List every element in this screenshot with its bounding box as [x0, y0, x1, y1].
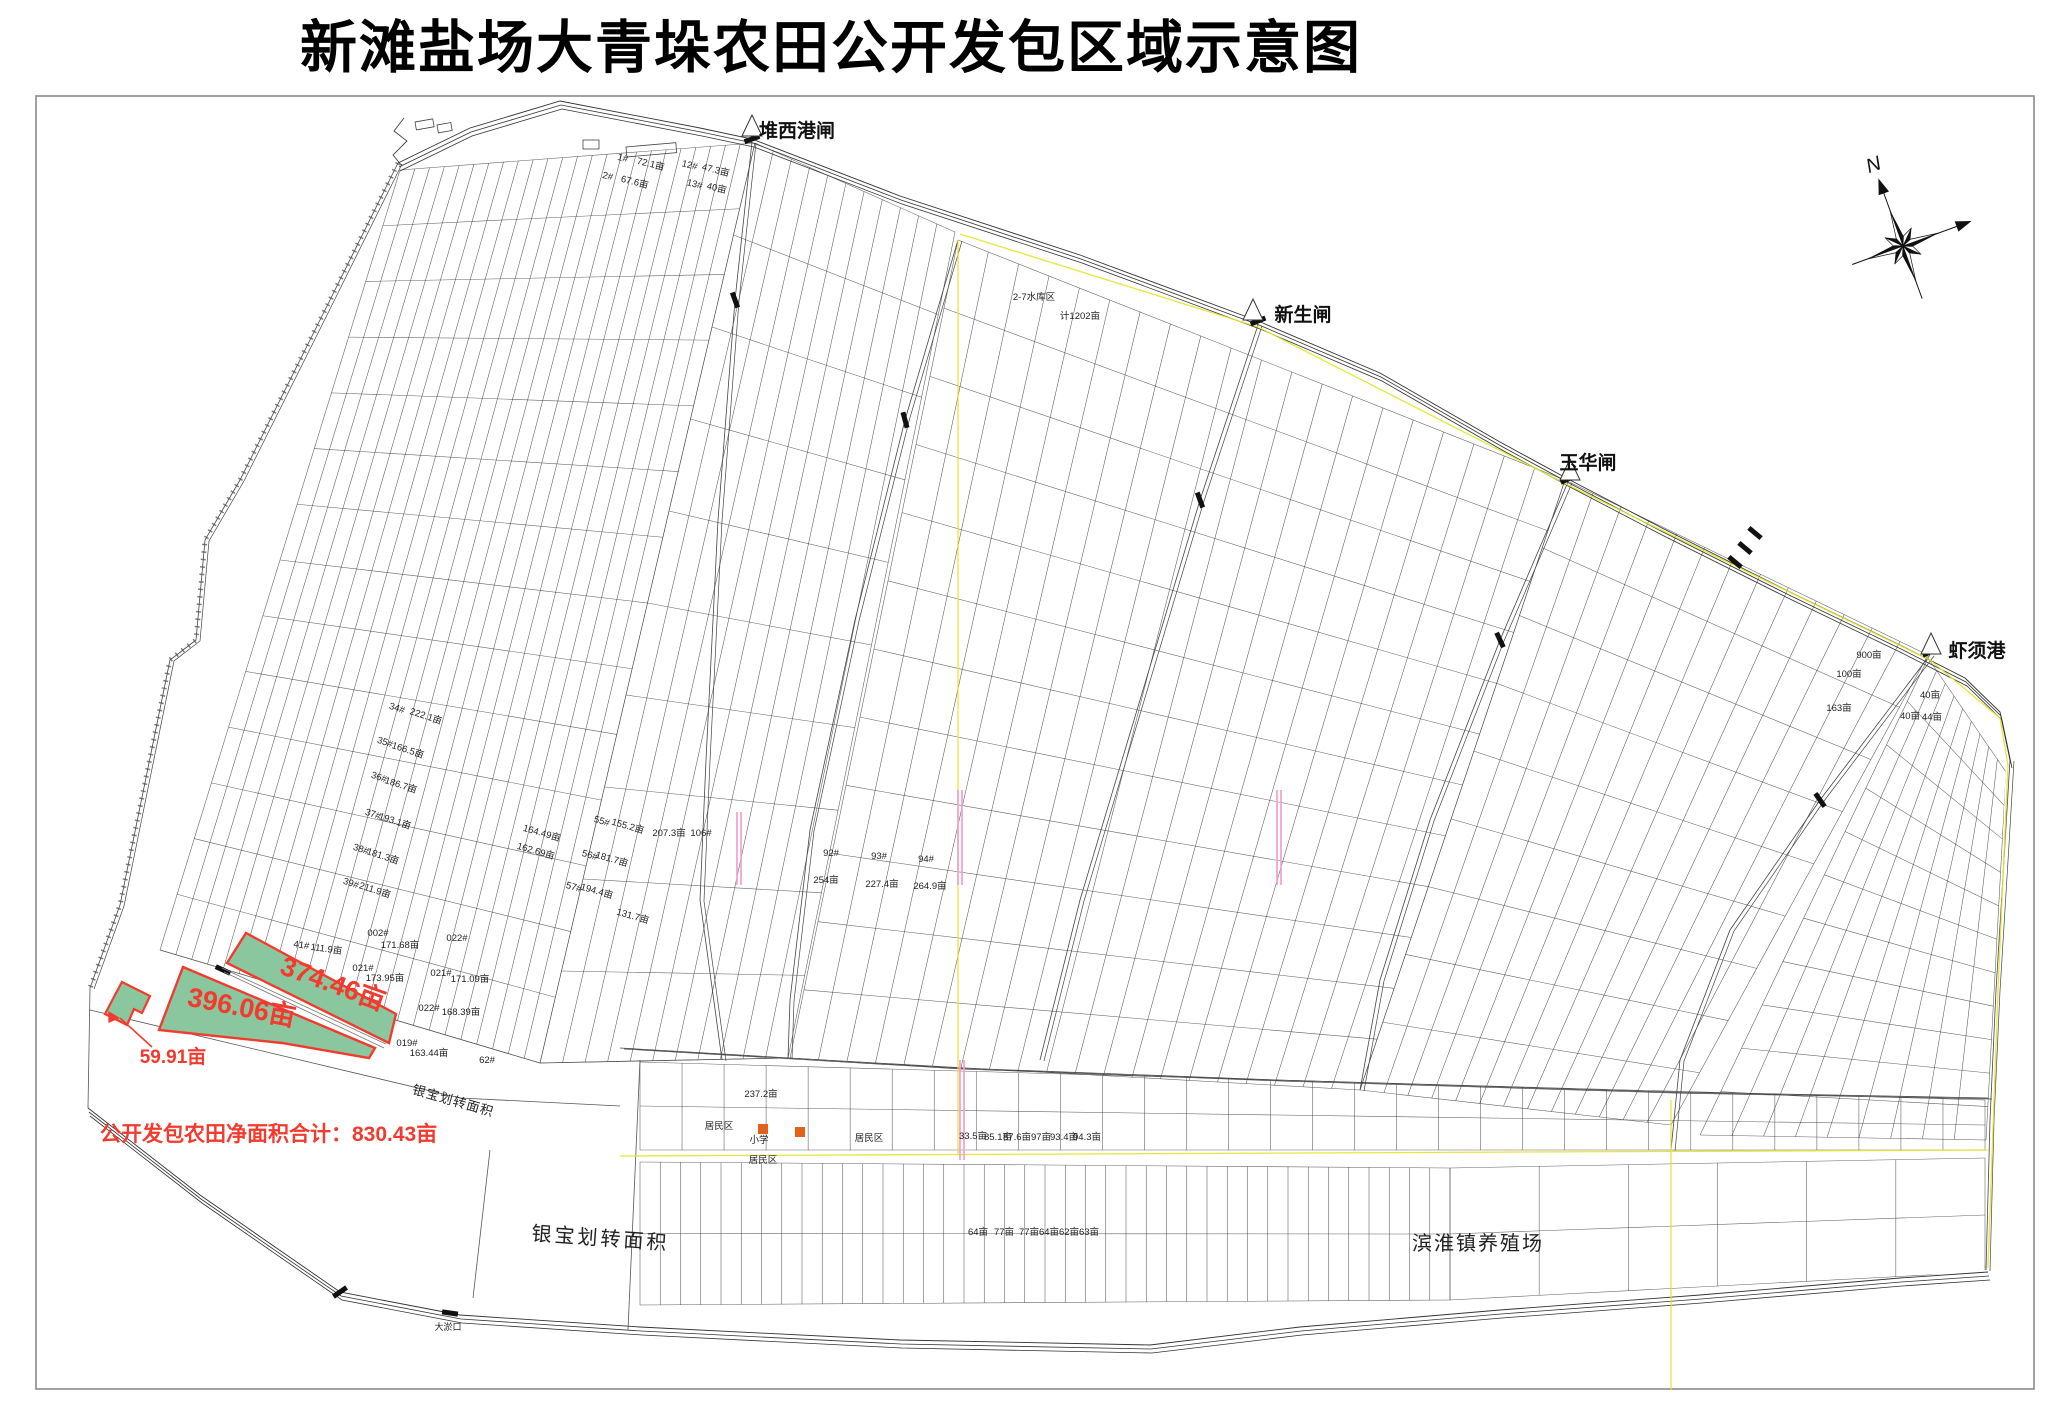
inner-road [1040, 325, 1258, 1060]
parcel-strip-line [1551, 588, 1788, 1112]
facility-square-icon [758, 1124, 768, 1134]
parcel-label: 92# [823, 848, 840, 859]
inner-road [90, 163, 398, 988]
parcel-label: 227.4亩 [865, 878, 898, 890]
parcel-label: 居民区 [855, 1133, 884, 1144]
parcel-label: 181.7亩 [594, 849, 629, 870]
parcel-cross-line [648, 603, 872, 645]
landmark-label: 虾须港 [1948, 640, 2006, 662]
compass-north-arrow [1873, 176, 1889, 195]
parcel-label: 171.68亩 [381, 939, 420, 951]
canal-road [398, 101, 2010, 760]
parcel-strip-line [1827, 709, 1963, 1138]
inner-road [620, 1048, 1988, 1098]
parcel-label: 022# [446, 933, 468, 944]
parcel-cross-line [280, 560, 648, 603]
parcel-label: 94# [918, 854, 935, 865]
parcel-cross-line [1866, 788, 2001, 872]
inner-road [1671, 655, 1930, 1150]
parcel-label: 33.5亩 [959, 1130, 987, 1142]
boundary-line [473, 1150, 490, 1298]
parcel-label: 40亩 [1900, 710, 1920, 722]
annotation-arrow [120, 1018, 152, 1047]
parcel-label: 193.1亩 [377, 810, 412, 832]
parcel-label: 计1202亩 [1060, 310, 1100, 322]
parcel-label: 173.95亩 [366, 972, 405, 984]
parcel-cross-line [562, 971, 805, 975]
parcel-label: 171.09亩 [451, 973, 490, 985]
map-canvas: 公开发包农田净面积合计：830.43亩 堆西港闸新生闸玉华闸虾须港374.46亩… [0, 0, 2069, 1417]
parcel-cross-line [1428, 887, 1756, 969]
parcel-label: 94.3亩 [1073, 1131, 1101, 1143]
highlight-area-label: 59.91亩 [140, 1045, 207, 1068]
parcel-label: 34# [388, 701, 407, 717]
parcel-label: 居民区 [705, 1121, 734, 1132]
landmark-label: 新生闸 [1274, 303, 1331, 326]
parcel-label: 186.7亩 [383, 774, 418, 796]
parcel-label: 12# [681, 158, 700, 173]
sluice-gate-icon [901, 412, 910, 429]
parcel-strip-line [1599, 615, 1844, 1117]
parcel-cross-line [1519, 616, 1870, 760]
canal-road [400, 109, 2012, 768]
parcel-cross-line [916, 445, 1514, 633]
parcel-label: 13# [686, 177, 705, 192]
gate-triangle-icon [1243, 299, 1263, 320]
parcel-label: 264.9亩 [913, 880, 946, 892]
parcel-label: 40亩 [706, 180, 728, 197]
compass-east-arrow [1955, 216, 1974, 232]
total-area-label: 公开发包农田净面积合计：830.43亩 [100, 1122, 437, 1146]
parcel-label: 211.9亩 [358, 879, 393, 900]
parcel-label: 022# [418, 1003, 440, 1014]
parcel-strip-line [1647, 642, 1900, 1123]
parcel-label: 900亩 [1856, 649, 1881, 661]
map-frame [36, 96, 2034, 1389]
parcel-cross-line [1783, 962, 1993, 1007]
landmark-label: 玉华闸 [1559, 451, 1616, 474]
building-outline [583, 140, 599, 149]
parcel-cross-line [1824, 875, 1997, 939]
facility-square-icon [795, 1127, 805, 1137]
boundary-notch [393, 118, 407, 166]
parcel-cross-line [583, 879, 821, 893]
sluice-gate-icon [1747, 526, 1762, 540]
parcel-strip-line [1623, 628, 1872, 1120]
parcel-label: 63亩 [1079, 1226, 1099, 1238]
parcel-cross-line [958, 240, 1565, 480]
inner-road [704, 143, 756, 1061]
parcel-strip-line [1859, 721, 1971, 1137]
parcel-label: 97亩 [1031, 1131, 1051, 1143]
parcel-label: 002# [367, 928, 389, 939]
compass-group: N [1819, 130, 1991, 317]
parcel-cross-line [902, 513, 1497, 684]
parcel-cross-line [712, 327, 922, 397]
parcel-label: 181.3亩 [365, 845, 400, 867]
parcel-cross-line [888, 581, 1480, 734]
parcel-label: 254亩 [813, 874, 838, 886]
parcel-label: 41# [293, 939, 311, 952]
parcel-label: 40亩 [1920, 689, 1940, 701]
parcel-cross-line [691, 419, 905, 480]
parcel-label: 64亩 [1039, 1226, 1059, 1238]
inner-road [624, 1049, 1992, 1099]
parcel-strip-line [1954, 759, 1997, 1139]
parcel-label: 77亩 [994, 1226, 1014, 1238]
parcel-cross-line [1762, 1005, 1991, 1040]
parcel-label: 小学 [749, 1134, 768, 1146]
parcel-cross-line [383, 209, 740, 226]
parcel-label: 100亩 [1836, 668, 1861, 680]
sluice-gate-icon [1737, 541, 1752, 555]
inner-road [1044, 326, 1262, 1061]
parcel-label: 194.4亩 [579, 881, 614, 902]
parcel-strip-line [1432, 520, 1649, 1098]
parcel-label: 163亩 [1826, 702, 1851, 714]
region-label: 银宝划转面积 [411, 1082, 496, 1120]
parcel-label: 72.1亩 [636, 155, 666, 173]
parcel-cross-line [944, 308, 1548, 531]
parcel-label: 163.44亩 [410, 1047, 449, 1059]
parcel-label: 居民区 [749, 1155, 778, 1166]
parcel-label: 131.7亩 [615, 906, 650, 927]
parcel-label: 111.9亩 [310, 941, 343, 957]
parcel-label: 2-7水库区 [1013, 291, 1056, 303]
parcel-label: 77亩 [1019, 1226, 1039, 1238]
compass-rose: N [1819, 130, 1991, 317]
parcel-cross-line [860, 717, 1445, 836]
inner-road [1364, 483, 1572, 1091]
parcel-cross-line [331, 393, 693, 406]
parcel-cross-line [818, 922, 1394, 989]
inner-road [792, 241, 962, 1059]
inner-road [1675, 656, 1934, 1151]
parcel-strip-line [1456, 534, 1677, 1101]
inner-road [700, 142, 752, 1060]
parcel-cross-line [297, 504, 663, 537]
parcel-label: 207.3亩 [652, 827, 685, 839]
parcel-cross-line [263, 616, 632, 669]
parcel-cross-line [1497, 683, 1843, 811]
compass-n-label: N [1863, 152, 1885, 178]
parcel-cross-line [1741, 1048, 1989, 1073]
parcel-label: 93# [871, 851, 888, 862]
parcel-cross-line [605, 787, 839, 810]
parcel-strip-line [1384, 493, 1593, 1092]
parcel-label: 166.5亩 [390, 739, 425, 761]
parcel-cross-line [846, 785, 1428, 886]
map-page: 新滩盐场大青垛农田公开发包区域示意图 公开发包农田净面积合计：830.43亩 堆… [0, 0, 2069, 1417]
parcel-label: 2# [601, 170, 615, 183]
parcel-label: 168.39亩 [442, 1006, 481, 1018]
landmark-label: 堆西港闸 [759, 119, 835, 142]
parcel-strip-line [1408, 507, 1621, 1095]
parcel-cross-line [1542, 548, 1899, 707]
parcel-cross-line [1406, 954, 1729, 1020]
parcel-cross-line [626, 695, 855, 728]
parcel-label: 237.2亩 [744, 1088, 777, 1100]
parcel-cross-line [874, 649, 1463, 785]
sluice-gate-icon [1494, 632, 1505, 649]
parcel-label: 44亩 [1922, 711, 1942, 723]
parcel-cross-line [1845, 831, 1999, 905]
parcel-label: 47.3亩 [701, 161, 731, 179]
building-outline [437, 123, 452, 133]
highlight-layer: 公开发包农田净面积合计：830.43亩 [100, 933, 437, 1146]
parcel-label: 64亩 [968, 1226, 988, 1238]
inner-road [1986, 760, 2010, 1270]
boundary-line [628, 1060, 640, 1330]
parcel-strip-line [1527, 574, 1760, 1109]
region-label: 银宝划转面积 [531, 1222, 670, 1255]
parcel-label: 106# [690, 828, 712, 839]
region-label: 滨淮镇养殖场 [1412, 1232, 1544, 1255]
parcel-cross-line [314, 449, 678, 472]
building-outline [415, 119, 434, 130]
inner-road [94, 164, 402, 989]
boundary-line [88, 988, 90, 1108]
parcel-cross-line [1887, 745, 2003, 839]
inner-road [788, 240, 958, 1058]
yellow-route-line [620, 1150, 1988, 1156]
parcel-cross-line [804, 990, 1377, 1039]
inner-road [1360, 482, 1568, 1090]
dike-hatch [90, 163, 398, 988]
gate-triangle-icon [1921, 633, 1941, 654]
parcel-cross-line [366, 274, 725, 281]
parcel-label: 大淤口 [434, 1321, 461, 1332]
parcel-strip-line [1671, 655, 1928, 1125]
inner-road [1990, 761, 2014, 1271]
sluice-gate-icon [1195, 492, 1205, 509]
parcel-cross-line [1383, 1022, 1700, 1073]
parcel-strip-line [1480, 547, 1705, 1103]
parcel-label: 62亩 [1059, 1226, 1079, 1238]
parcel-label: 87.6亩 [1003, 1131, 1031, 1143]
parcel-cross-line [832, 854, 1411, 938]
parcel-strip-line [1795, 696, 1954, 1137]
parcel-label: 1# [616, 152, 630, 165]
parcel-label: 164.49亩 [522, 822, 562, 844]
parcel-strip-line [1922, 747, 1988, 1139]
parcel-cross-line [734, 235, 939, 315]
parcel-cross-line [1474, 751, 1814, 864]
parcel-label: 021# [430, 968, 452, 979]
parcel-label: 62# [479, 1055, 496, 1066]
